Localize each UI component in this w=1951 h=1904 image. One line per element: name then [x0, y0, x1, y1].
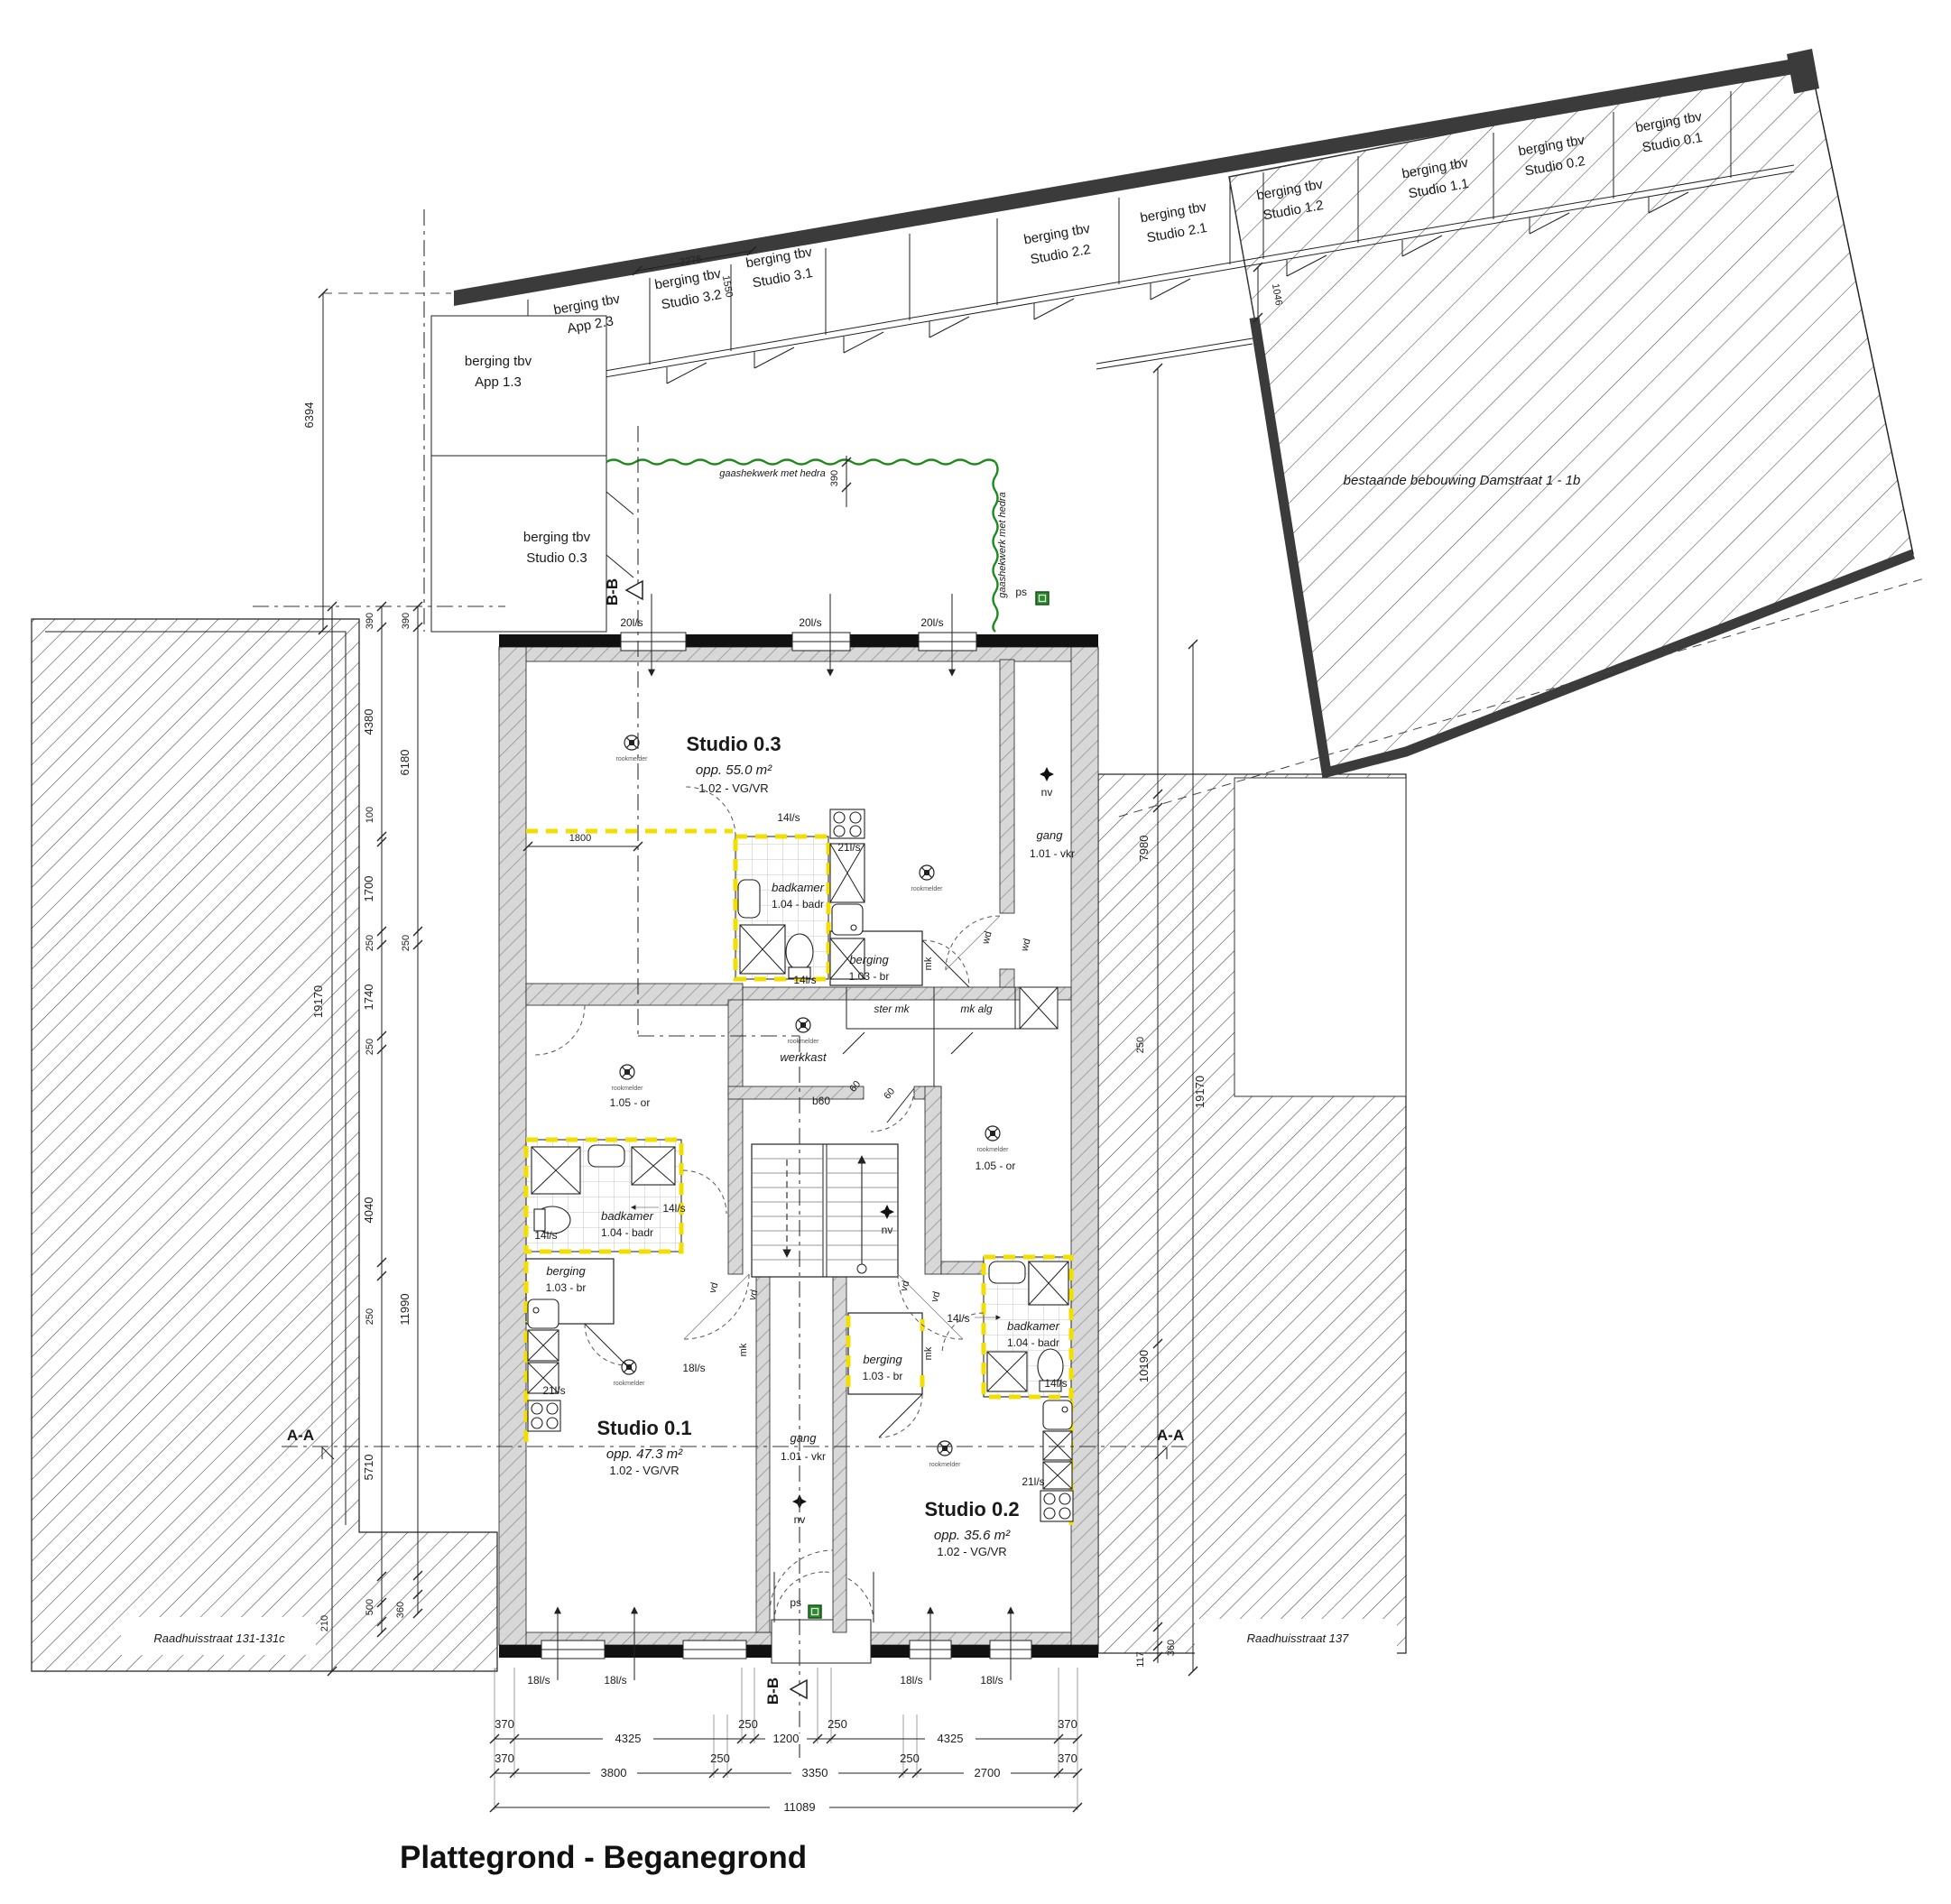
badkamer01-code: 1.04 - badr: [601, 1226, 653, 1239]
ps-icon: [1036, 592, 1049, 605]
svg-text:3800: 3800: [601, 1766, 627, 1779]
svg-text:100: 100: [365, 807, 375, 823]
studio01-name: Studio 0.1: [596, 1417, 691, 1439]
gang-top-code: 1.01 - vkr: [1030, 847, 1075, 860]
svg-text:nv: nv: [1041, 786, 1053, 799]
svg-text:390: 390: [829, 470, 840, 486]
studio01-area: opp. 47.3 m²: [606, 1446, 683, 1462]
svg-text:1700: 1700: [362, 876, 375, 902]
svg-text:4325: 4325: [615, 1732, 642, 1745]
svg-text:Studio 3.1: Studio 3.1: [751, 265, 813, 291]
neighbor-left-building: Raadhuisstraat 131-131c: [32, 619, 497, 1671]
berging02-name: berging: [863, 1353, 902, 1366]
vent-18ls: 18l/s: [980, 1674, 1003, 1687]
vent-18ls: 18l/s: [682, 1362, 705, 1374]
svg-text:500: 500: [365, 1599, 375, 1615]
svg-text:3350: 3350: [802, 1766, 828, 1779]
kitchen-studio01: [526, 1299, 560, 1444]
svg-text:250: 250: [1135, 1037, 1146, 1053]
berging03-code: 1.03 - br: [849, 970, 890, 983]
existing-building-label: bestaande bebouwing Damstraat 1 - 1b: [1344, 473, 1581, 488]
section-bb-top: B-B: [604, 578, 621, 605]
svg-text:rookmelder: rookmelder: [613, 1381, 645, 1387]
mk-tag: mk: [738, 1343, 749, 1356]
badkamer03-code: 1.04 - badr: [772, 898, 824, 910]
svg-text:4380: 4380: [362, 709, 375, 735]
main-building: Studio 0.3 opp. 55.0 m² 1.02 - VG/VR Stu…: [499, 586, 1098, 1687]
svg-text:Studio 0.3: Studio 0.3: [526, 550, 587, 566]
svg-text:250: 250: [828, 1717, 847, 1731]
vent-21ls: 21l/s: [542, 1384, 565, 1397]
svg-text:7980: 7980: [1137, 836, 1151, 862]
svg-text:6180: 6180: [398, 750, 411, 776]
fence-label: gaashekwerk met hedra: [719, 468, 825, 479]
svg-text:4040: 4040: [362, 1197, 375, 1224]
svg-text:11990: 11990: [398, 1293, 411, 1325]
vent-18ls: 18l/s: [604, 1674, 626, 1687]
svg-text:390: 390: [401, 613, 411, 629]
svg-text:1740: 1740: [362, 984, 375, 1011]
svg-text:rookmelder: rookmelder: [615, 756, 648, 763]
vent-14ls: 14l/s: [947, 1312, 969, 1325]
svg-text:ps: ps: [1015, 586, 1027, 598]
svg-text:2700: 2700: [975, 1766, 1001, 1779]
studio01-code: 1.02 - VG/VR: [609, 1464, 679, 1477]
svg-text:Studio 3.2: Studio 3.2: [660, 287, 722, 312]
svg-text:390: 390: [365, 613, 375, 629]
badkamer02-name: badkamer: [1007, 1319, 1059, 1333]
mk-alg-label: mk alg: [960, 1003, 993, 1015]
garden-fence: gaashekwerk met hedra gaashekwerk met he…: [606, 460, 1008, 633]
svg-text:rookmelder: rookmelder: [976, 1147, 1009, 1153]
fence-label-vertical: gaashekwerk met hedra: [997, 492, 1008, 597]
svg-text:nv: nv: [882, 1224, 893, 1236]
gang-top-name: gang: [1037, 828, 1064, 842]
vent-14ls: 14l/s: [1044, 1377, 1067, 1390]
vent-14ls: 14l/s: [777, 811, 800, 824]
studio02-area: opp. 35.6 m²: [934, 1528, 1011, 1543]
section-aa-left: A-A: [287, 1427, 314, 1444]
svg-text:6394: 6394: [302, 402, 316, 429]
svg-text:10190: 10190: [1137, 1350, 1151, 1382]
studio02-name: Studio 0.2: [924, 1498, 1019, 1520]
svg-text:19170: 19170: [1193, 1076, 1207, 1108]
svg-text:250: 250: [738, 1717, 758, 1731]
svg-text:Studio 2.1: Studio 2.1: [1145, 220, 1207, 245]
vent-14ls: 14l/s: [793, 974, 816, 986]
svg-text:rookmelder: rookmelder: [911, 886, 943, 892]
svg-text:19170: 19170: [311, 985, 325, 1018]
svg-text:117: 117: [1135, 1651, 1146, 1668]
svg-text:rookmelder: rookmelder: [787, 1039, 819, 1045]
svg-text:rookmelder: rookmelder: [611, 1086, 643, 1092]
vent-b60: b60: [812, 1095, 830, 1107]
svg-text:370: 370: [495, 1751, 514, 1765]
mk-tag: mk: [923, 1346, 934, 1360]
vent-20ls: 20l/s: [799, 616, 821, 629]
vent-20ls: 20l/s: [620, 616, 643, 629]
or-room-left: 1.05 - or: [610, 1096, 651, 1109]
svg-text:250: 250: [710, 1751, 730, 1765]
vent-21ls: 21l/s: [1022, 1475, 1044, 1488]
north-windows: [621, 633, 976, 651]
svg-text:1550: 1550: [720, 274, 735, 298]
kitchen-studio02: [1040, 1400, 1073, 1525]
storage-label: berging tbv: [523, 530, 591, 545]
svg-text:Studio 2.2: Studio 2.2: [1029, 242, 1091, 267]
badkamer02-code: 1.04 - badr: [1007, 1336, 1059, 1349]
dim-total: 11089: [783, 1800, 815, 1814]
vent-20ls: 20l/s: [920, 616, 943, 629]
svg-text:370: 370: [1058, 1717, 1077, 1731]
berging01-code: 1.03 - br: [546, 1281, 587, 1294]
gang-bottom-name: gang: [791, 1431, 818, 1445]
berging03-name: berging: [849, 953, 889, 966]
svg-text:250: 250: [365, 935, 375, 951]
section-aa-right: A-A: [1157, 1427, 1184, 1444]
svg-text:4325: 4325: [938, 1732, 964, 1745]
svg-text:250: 250: [401, 935, 411, 951]
studio03-code: 1.02 - VG/VR: [698, 781, 768, 795]
street-left-label: Raadhuisstraat 131-131c: [153, 1631, 285, 1645]
svg-text:5710: 5710: [362, 1455, 375, 1481]
staircase: [752, 1144, 898, 1277]
svg-text:360: 360: [395, 1602, 406, 1618]
svg-text:250: 250: [365, 1308, 375, 1325]
vent-21ls: 21l/s: [837, 841, 860, 854]
ps-icon: [809, 1605, 821, 1618]
studio03-area: opp. 55.0 m²: [696, 763, 772, 778]
svg-text:250: 250: [900, 1751, 920, 1765]
vent-18ls: 18l/s: [900, 1674, 922, 1687]
floorplan-page: Raadhuisstraat 131-131c Raadhuisstraat 1…: [0, 0, 1951, 1904]
svg-text:370: 370: [495, 1717, 514, 1731]
drawing-title: Plattegrond - Beganegrond: [400, 1840, 807, 1875]
studio02-code: 1.02 - VG/VR: [937, 1545, 1006, 1558]
vent-18ls: 18l/s: [527, 1674, 550, 1687]
studio03-name: Studio 0.3: [686, 733, 781, 755]
badkamer01-name: badkamer: [601, 1209, 653, 1223]
svg-text:210: 210: [319, 1615, 330, 1631]
section-bb-bottom: B-B: [764, 1678, 781, 1705]
svg-text:370: 370: [1058, 1751, 1077, 1765]
vent-14ls: 14l/s: [662, 1202, 685, 1215]
svg-text:360: 360: [1166, 1640, 1177, 1656]
floorplan-drawing: Raadhuisstraat 131-131c Raadhuisstraat 1…: [0, 0, 1951, 1904]
werkkast-label: werkkast: [780, 1050, 828, 1064]
storage-label: berging tbv: [465, 354, 532, 369]
mk-tag: mk: [923, 957, 934, 970]
svg-text:rookmelder: rookmelder: [929, 1462, 961, 1468]
svg-text:250: 250: [365, 1039, 375, 1055]
svg-text:App 1.3: App 1.3: [475, 374, 522, 390]
berging01-name: berging: [546, 1264, 586, 1278]
berging02-code: 1.03 - br: [863, 1370, 903, 1382]
svg-text:1800: 1800: [569, 833, 591, 844]
ster-mk-label: ster mk: [874, 1003, 910, 1015]
street-right-label: Raadhuisstraat 137: [1247, 1631, 1350, 1645]
badkamer03-name: badkamer: [772, 881, 824, 894]
or-room-right: 1.05 - or: [975, 1160, 1016, 1172]
svg-text:1200: 1200: [773, 1732, 800, 1745]
vent-14ls: 14l/s: [534, 1229, 557, 1242]
gang-bottom-code: 1.01 - vkr: [781, 1450, 826, 1463]
